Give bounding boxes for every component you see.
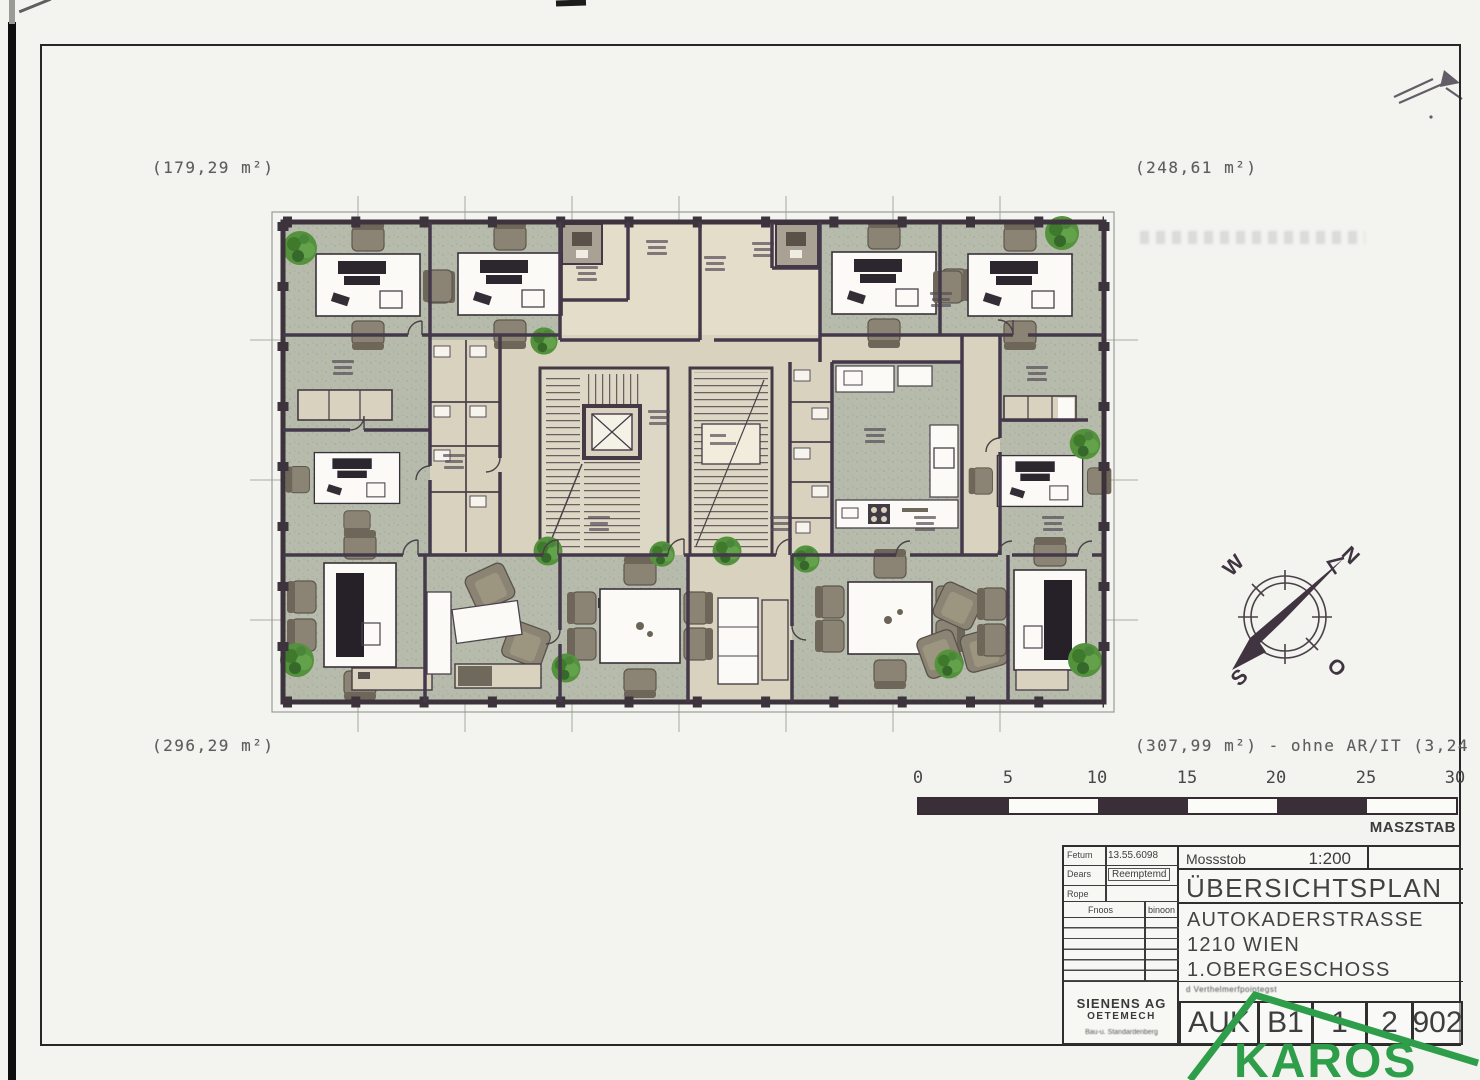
meta-label: Rope <box>1067 889 1089 899</box>
scale-label: Mossstob <box>1186 851 1246 867</box>
meta-row-date: Fetum 13.55.6098 <box>1064 847 1179 866</box>
address-line: 1.OBERGESCHOSS <box>1187 958 1463 983</box>
meta-row-author: Dears Reemptemd <box>1064 866 1179 886</box>
scale-bar-segments <box>917 797 1458 815</box>
area-label-top-left: (179,29 m²) <box>152 158 274 177</box>
address-line: AUTOKADERSTRASSE <box>1187 908 1463 933</box>
scale-tick: 10 <box>1080 768 1114 788</box>
meta-value: Reemptemd <box>1108 868 1170 881</box>
karos-logo: KAROS <box>1160 985 1480 1080</box>
scan-edge-strip-top <box>9 0 15 24</box>
drawing-title: ÜBERSICHTSPLAN <box>1179 870 1463 904</box>
area-label-bottom-left: (296,29 m²) <box>152 736 274 755</box>
area-label-bottom-right: (307,99 m²) - ohne AR/IT (3,24 m <box>1135 736 1480 755</box>
scan-artifact-top <box>556 0 586 7</box>
scale-row: Mossstob 1:200 <box>1179 847 1369 870</box>
revision-rows <box>1064 918 1179 982</box>
scale-bar-label: MASZSTAB <box>1370 819 1456 836</box>
address-line: 1210 WIEN <box>1187 933 1463 958</box>
scanned-plan-sheet: N W S O (179,29 m²) (248,61 m²) (296,29 … <box>0 0 1480 1080</box>
revision-header-right: binoon <box>1148 905 1175 915</box>
scale-tick: 5 <box>991 768 1025 788</box>
meta-row-check: Rope <box>1064 886 1179 902</box>
scale-bar: 0 5 10 15 20 25 30 MASZSTAB <box>915 768 1460 840</box>
meta-label: Dears <box>1067 869 1091 879</box>
meta-label: Fetum <box>1067 850 1093 860</box>
scale-value: 1:200 <box>1308 849 1351 869</box>
scale-tick: 25 <box>1349 768 1383 788</box>
meta-value: 13.55.6098 <box>1108 850 1158 861</box>
scale-tick: 15 <box>1170 768 1204 788</box>
scan-edge-strip <box>8 22 16 1080</box>
revision-header-left: Fnoos <box>1088 905 1113 915</box>
area-label-top-right: (248,61 m²) <box>1135 158 1257 177</box>
scale-tick: 0 <box>901 768 935 788</box>
scale-tick: 20 <box>1259 768 1293 788</box>
scale-row-empty-cell <box>1369 847 1463 870</box>
karos-logo-text: KAROS <box>1234 1035 1417 1080</box>
scale-tick: 30 <box>1438 768 1472 788</box>
project-address: AUTOKADERSTRASSE 1210 WIEN 1.OBERGESCHOS… <box>1179 904 1463 982</box>
revision-header: Fnoos binoon <box>1064 902 1179 918</box>
revision-divider <box>1144 902 1146 982</box>
